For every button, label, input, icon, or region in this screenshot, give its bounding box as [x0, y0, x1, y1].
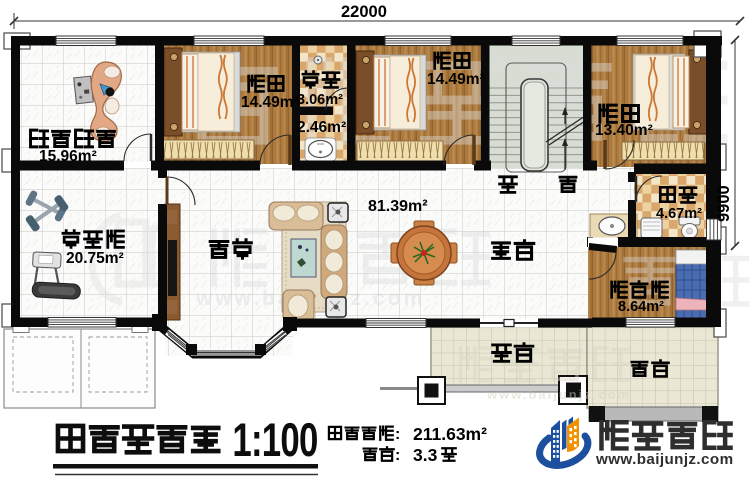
svg-text:1:100: 1:100	[232, 414, 317, 466]
svg-text:211.63m²: 211.63m²	[413, 424, 487, 444]
svg-text:22000: 22000	[341, 3, 387, 21]
svg-text:14.49m²: 14.49m²	[427, 71, 485, 88]
svg-text:15.96m²: 15.96m²	[39, 148, 97, 165]
svg-text:81.39m²: 81.39m²	[368, 198, 428, 215]
svg-text:14.49m²: 14.49m²	[241, 94, 299, 111]
svg-text:www.baijunjz.com: www.baijunjz.com	[595, 451, 733, 468]
svg-text:3.06m²: 3.06m²	[297, 92, 343, 108]
svg-text:8.64m²: 8.64m²	[618, 299, 664, 315]
svg-text:20.75m²: 20.75m²	[66, 250, 124, 267]
svg-text:3.3: 3.3	[413, 445, 438, 465]
svg-text:13.40m²: 13.40m²	[595, 122, 653, 139]
svg-text:www.baijunjz.com: www.baijunjz.com	[486, 387, 631, 402]
svg-text::: :	[395, 447, 400, 464]
svg-text:4.67m²: 4.67m²	[656, 206, 702, 222]
svg-text:2.46m²: 2.46m²	[297, 119, 346, 136]
svg-text:9900: 9900	[715, 185, 733, 222]
svg-text::: :	[395, 426, 400, 443]
